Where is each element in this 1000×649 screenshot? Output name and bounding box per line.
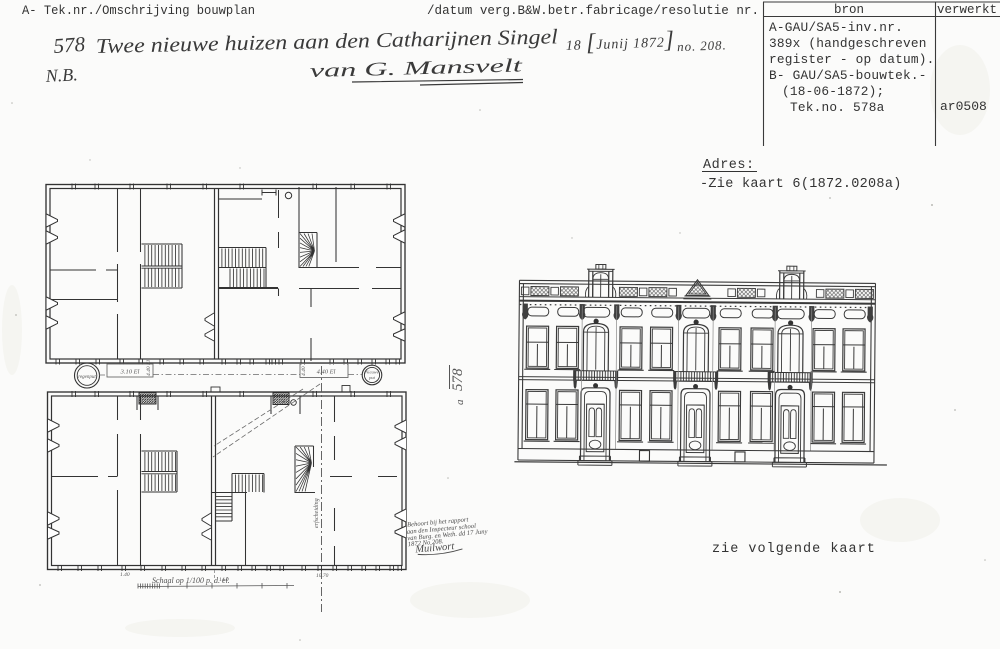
svg-text:4.40 El: 4.40 El xyxy=(145,360,152,376)
svg-text:zie volgende kaart: zie volgende kaart xyxy=(712,542,876,557)
svg-text:bron: bron xyxy=(834,3,864,17)
svg-text:/datum verg.B&W.betr.fabricage: /datum verg.B&W.betr.fabricage/resolutie… xyxy=(427,3,759,18)
svg-text:A-GAU/SA5-inv.nr.: A-GAU/SA5-inv.nr. xyxy=(769,20,903,35)
svg-text:N.B.: N.B. xyxy=(44,64,78,86)
svg-text:4.40 El: 4.40 El xyxy=(317,369,336,376)
svg-text:389x (handgeschreven: 389x (handgeschreven xyxy=(769,36,927,51)
svg-text:A- Tek.nr./Omschrijving bouwpl: A- Tek.nr./Omschrijving bouwplan xyxy=(22,3,255,18)
svg-text:erfscheiding: erfscheiding xyxy=(313,498,320,528)
svg-text:3.10 El: 3.10 El xyxy=(120,369,140,376)
svg-text:Tek.no. 578a: Tek.no. 578a xyxy=(790,100,885,115)
svg-text:10.70: 10.70 xyxy=(316,573,329,579)
svg-text:regenput: regenput xyxy=(78,375,96,380)
svg-text:register - op datum).: register - op datum). xyxy=(769,52,934,67)
svg-text:verwerkt: verwerkt xyxy=(937,3,997,17)
svg-text:ar0508: ar0508 xyxy=(940,99,987,114)
svg-text:14.0: 14.0 xyxy=(219,576,229,583)
svg-text:-Zie kaart 6(1872.0208a): -Zie kaart 6(1872.0208a) xyxy=(700,177,902,192)
svg-text:put: put xyxy=(368,375,376,380)
svg-text:(18-06-1872);: (18-06-1872); xyxy=(782,84,884,99)
svg-text:4.40: 4.40 xyxy=(300,366,307,376)
svg-text:Nieuwe: Nieuwe xyxy=(364,370,379,375)
svg-text:578: 578 xyxy=(53,32,87,58)
svg-text:1.40: 1.40 xyxy=(120,571,130,578)
svg-text:578: 578 xyxy=(450,368,466,391)
svg-text:a: a xyxy=(454,399,466,405)
svg-text:Adres:: Adres: xyxy=(703,158,755,173)
svg-text:B- GAU/SA5-bouwtek.-: B- GAU/SA5-bouwtek.- xyxy=(769,68,927,83)
